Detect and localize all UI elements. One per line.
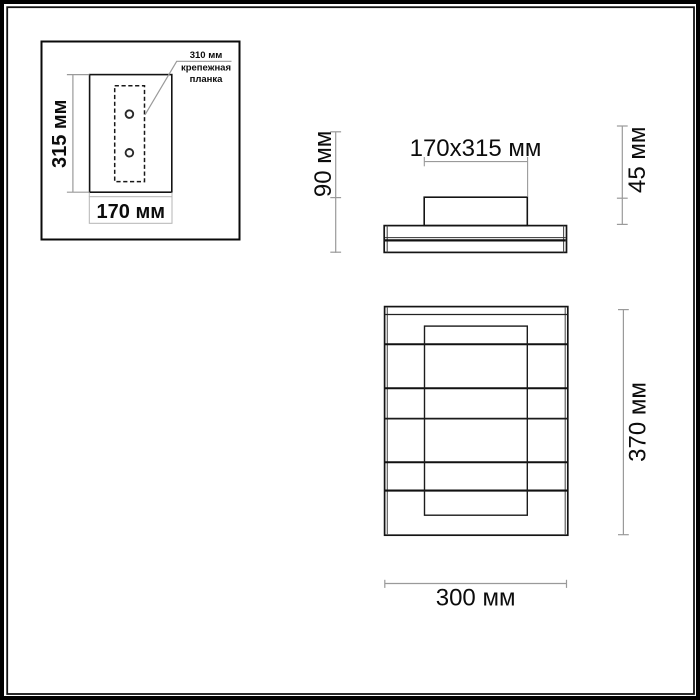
svg-text:45 мм: 45 мм [624, 127, 651, 193]
svg-text:300 мм: 300 мм [436, 584, 516, 611]
svg-text:170 мм: 170 мм [97, 201, 166, 223]
svg-text:90 мм: 90 мм [310, 131, 337, 197]
svg-text:310 мм: 310 мм [190, 50, 223, 61]
svg-text:планка: планка [190, 74, 224, 85]
svg-text:370 мм: 370 мм [625, 382, 652, 462]
svg-text:крепежная: крепежная [181, 63, 231, 74]
svg-text:315 мм: 315 мм [49, 100, 71, 169]
svg-text:170x315 мм: 170x315 мм [410, 135, 542, 162]
